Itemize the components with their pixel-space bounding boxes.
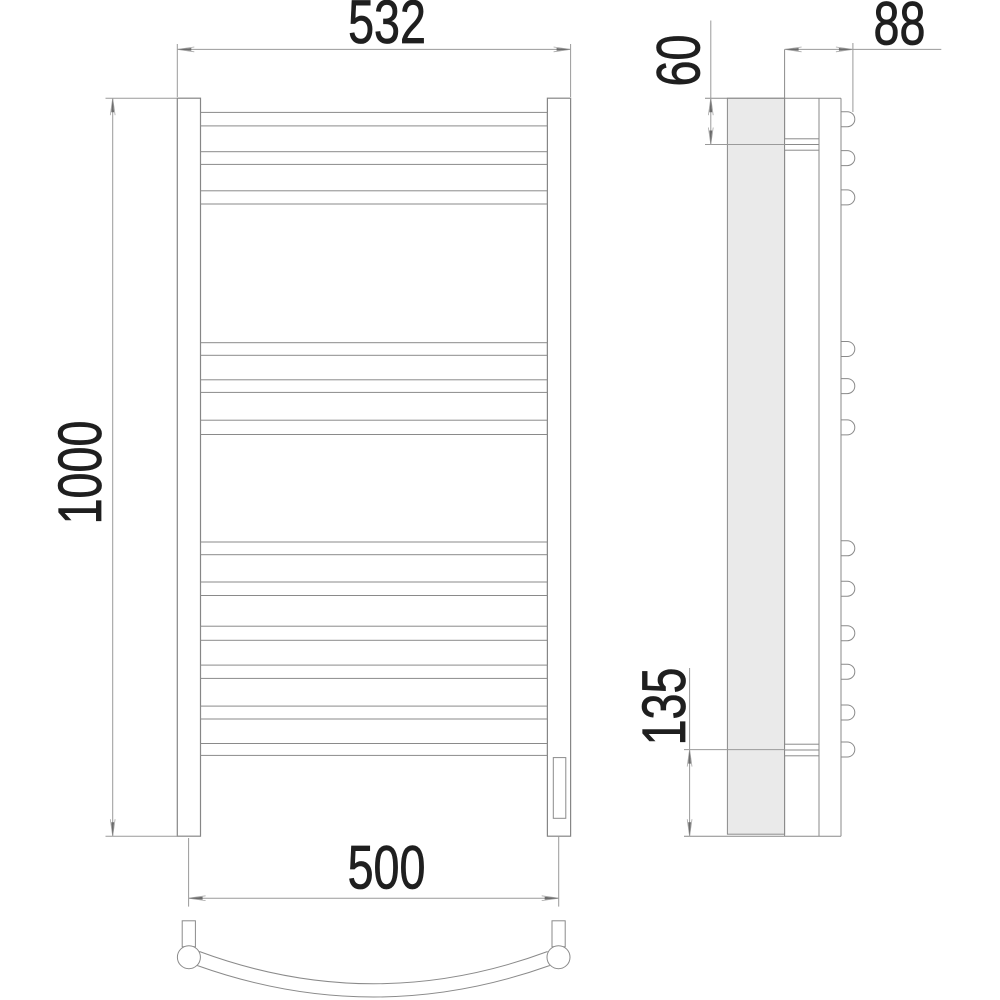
- svg-text:500: 500: [348, 833, 426, 902]
- svg-text:135: 135: [630, 668, 699, 746]
- svg-text:60: 60: [644, 35, 713, 87]
- svg-text:88: 88: [874, 0, 926, 58]
- svg-text:1000: 1000: [46, 421, 115, 525]
- svg-text:532: 532: [348, 0, 426, 56]
